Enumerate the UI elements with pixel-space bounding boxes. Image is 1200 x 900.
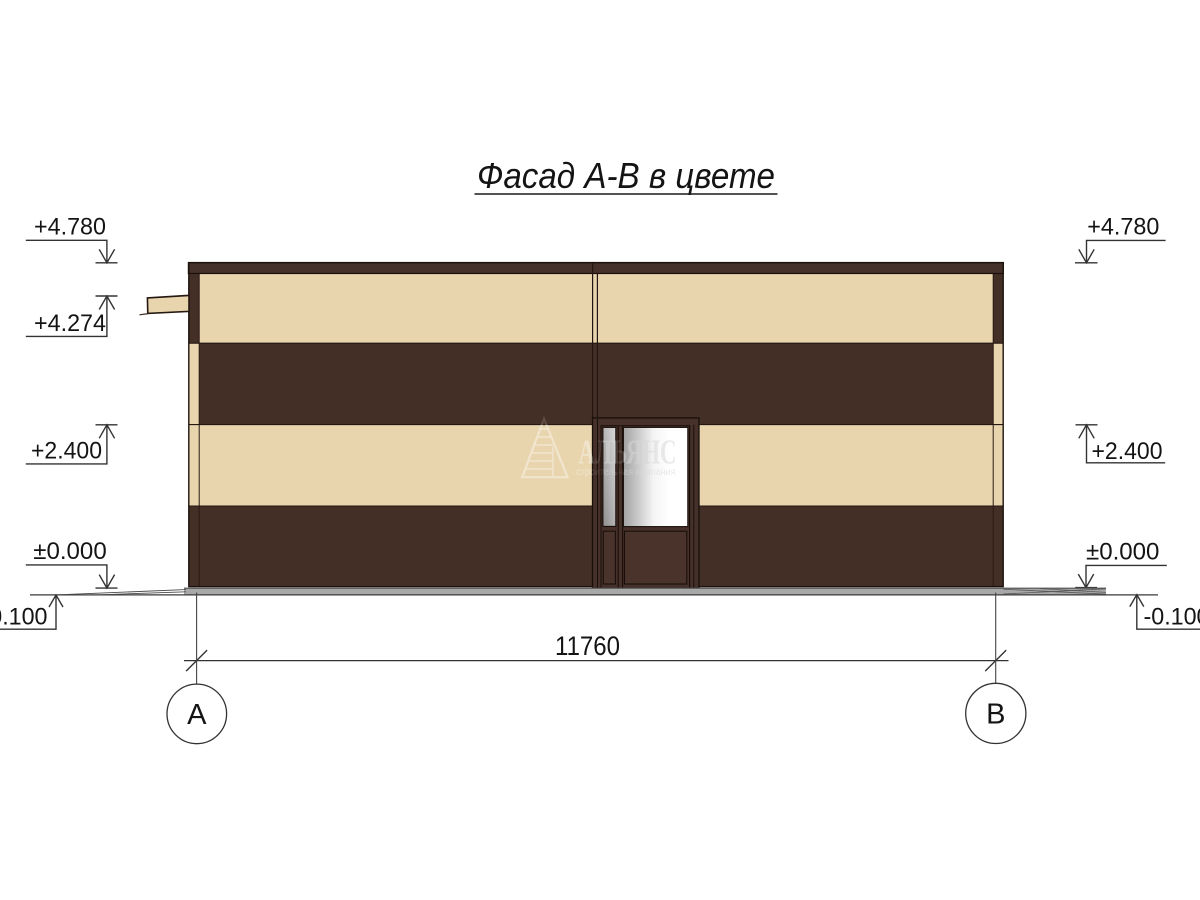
svg-text:+2.400: +2.400: [31, 437, 102, 464]
svg-text:A: A: [187, 699, 207, 731]
svg-text:+4.780: +4.780: [34, 214, 106, 241]
svg-text:-0.100: -0.100: [0, 604, 48, 631]
svg-text:B: B: [986, 699, 1005, 731]
svg-text:+2.400: +2.400: [1092, 438, 1163, 465]
svg-text:±0.000: ±0.000: [1086, 538, 1159, 565]
svg-text:11760: 11760: [555, 631, 620, 661]
svg-text:Фасад А-В в цвете: Фасад А-В в цвете: [477, 155, 775, 196]
svg-text:±0.000: ±0.000: [33, 538, 106, 565]
svg-text:+4.780: +4.780: [1087, 214, 1159, 241]
svg-text:+4.274: +4.274: [34, 310, 106, 337]
svg-text:-0.100: -0.100: [1144, 604, 1200, 631]
